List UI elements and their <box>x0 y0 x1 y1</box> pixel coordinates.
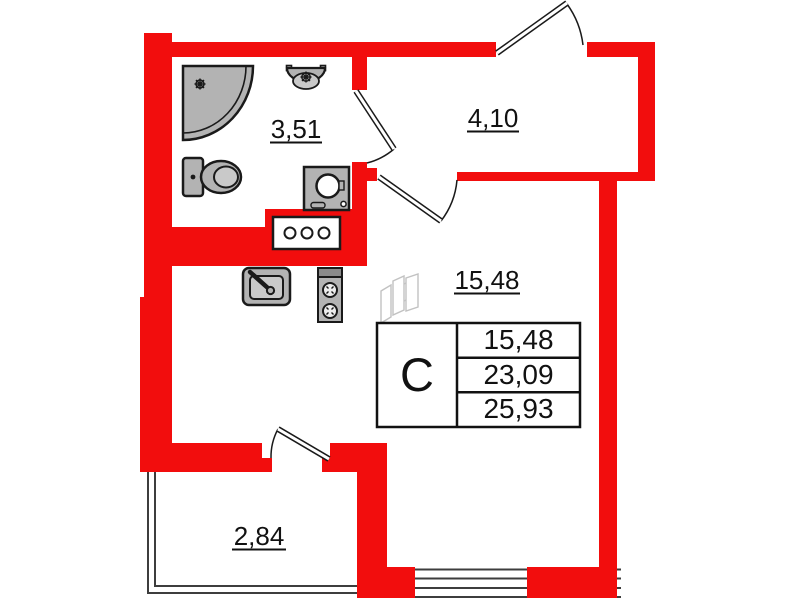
wall-left-upper <box>144 33 172 297</box>
table-total-area: 23,09 <box>483 359 553 390</box>
table-living-area: 15,48 <box>483 324 553 355</box>
wall-top-left <box>144 42 496 57</box>
table-total-area-with-balcony: 25,93 <box>483 393 553 424</box>
shower-icon <box>183 66 253 140</box>
living-room-area-label: 15,48 <box>454 265 519 295</box>
wall-hallway-right <box>638 42 655 181</box>
bathroom-door <box>356 91 394 163</box>
balcony-area-label: 2,84 <box>234 521 285 551</box>
wall-bathroom-right-lower <box>352 162 367 209</box>
toilet-icon <box>183 158 241 196</box>
washbasin-icon <box>287 66 326 90</box>
wall-balcony-band-right <box>330 443 387 472</box>
kitchen-sink-icon <box>243 268 290 305</box>
stove-icon <box>318 268 342 322</box>
shower-drain <box>195 79 206 90</box>
furniture-sketch-icon <box>381 274 418 323</box>
floor-plan: С 15,48 23,09 25,93 3,51 4,10 15,48 2,84 <box>0 0 800 600</box>
summary-table: С 15,48 23,09 25,93 <box>377 323 580 427</box>
wall-bottom-left-pier <box>387 567 415 598</box>
unit-type-label: С <box>400 348 434 401</box>
wall-door-stub <box>367 168 377 181</box>
wall-room-right <box>599 172 617 598</box>
wall-balcony-jamb-left <box>262 458 272 472</box>
wall-balcony-band-left <box>140 443 262 472</box>
living-room-door <box>379 177 457 221</box>
entrance-door <box>497 3 583 53</box>
wall-bathroom-right-upper <box>352 57 367 90</box>
wall-right-of-balcony <box>357 472 387 598</box>
wall-bottom-right-pier <box>527 567 617 598</box>
hallway-area-label: 4,10 <box>468 103 519 133</box>
vent-shaft-icon <box>273 217 340 249</box>
balcony-door <box>271 429 329 459</box>
washing-machine-icon <box>304 167 349 210</box>
bathroom-area-label: 3,51 <box>271 114 322 144</box>
washbasin-tap <box>301 72 312 83</box>
floor-plan-page: С 15,48 23,09 25,93 3,51 4,10 15,48 2,84 <box>0 0 800 600</box>
wall-hallway-bottom <box>457 172 655 181</box>
wall-bathroom-bottom <box>172 227 265 266</box>
